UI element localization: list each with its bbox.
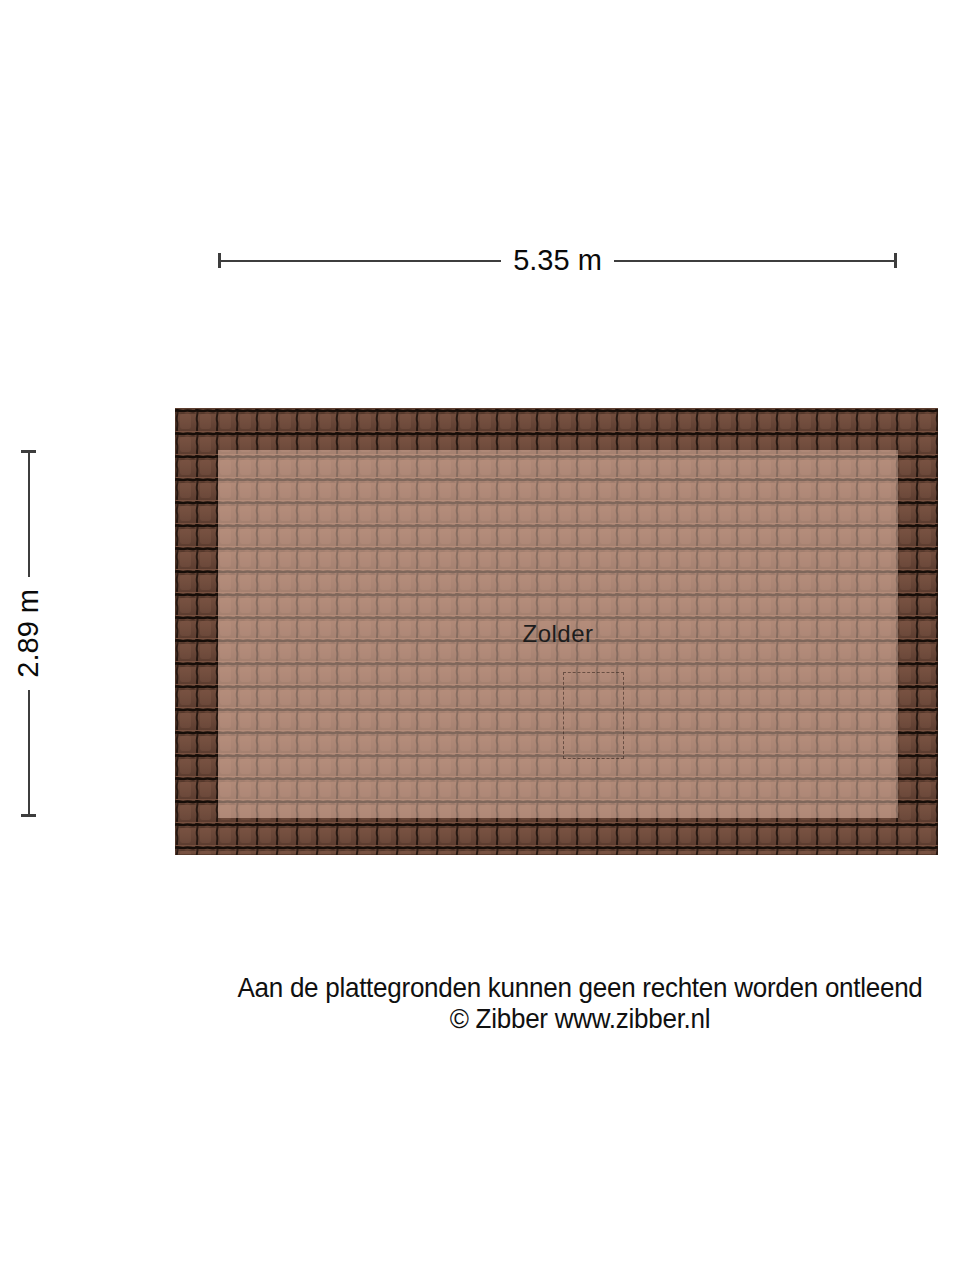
width-dimension: 5.35 m [218, 252, 897, 269]
disclaimer-text: Aan de plattegronden kunnen geen rechten… [225, 972, 936, 1003]
dimension-line [28, 690, 30, 814]
width-dimension-label: 5.35 m [501, 252, 614, 269]
floorplan-page: 5.35 m 2.89 m [0, 0, 960, 1280]
dimension-tick-right [894, 253, 897, 268]
height-dimension: 2.89 m [20, 450, 37, 817]
stair-opening-dashed-outline [563, 672, 624, 759]
copyright-text: © Zibber www.zibber.nl [225, 1003, 936, 1034]
room-label: Zolder [522, 620, 593, 648]
height-dimension-label: 2.89 m [12, 577, 45, 690]
footer: Aan de plattegronden kunnen geen rechten… [225, 972, 936, 1034]
room-area-zolder: Zolder [218, 450, 898, 818]
dimension-line [221, 260, 501, 262]
dimension-line [28, 453, 30, 577]
dimension-line [614, 260, 894, 262]
roof-plan: Zolder [175, 408, 938, 855]
dimension-tick-bottom [21, 814, 36, 817]
